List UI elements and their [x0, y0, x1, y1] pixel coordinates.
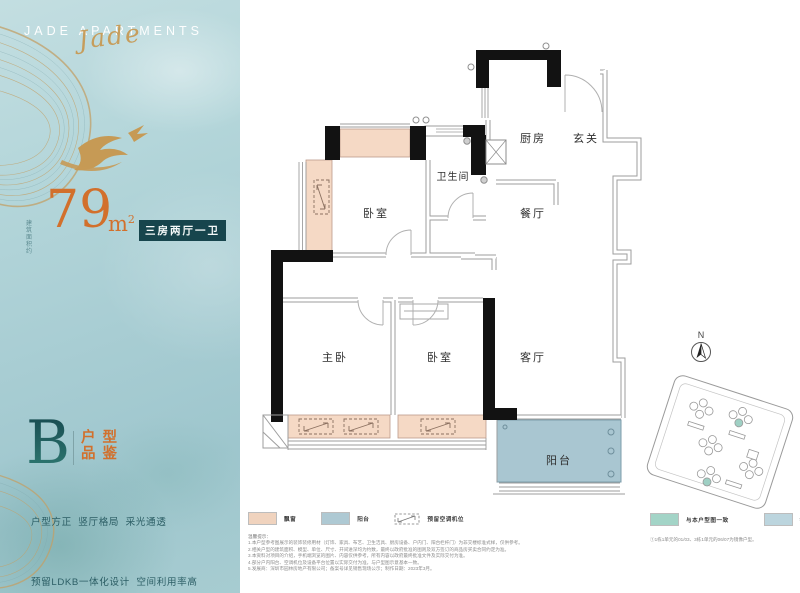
siteplan-icon [645, 373, 795, 510]
legend-same-label: 与本户型图一致 [686, 516, 729, 524]
room-label-foyer: 玄关 [573, 131, 599, 145]
mirror-note: ①1栋1单元的01/03、3栋1单元的06/07为镜像户型。 [650, 537, 757, 543]
room-label-dining: 餐厅 [520, 206, 546, 220]
room-label-bathroom: 卫生间 [437, 170, 470, 183]
room-label-balcony: 阳台 [546, 453, 572, 467]
feature-item: 户型方正 竖厅格局 采光通透 [31, 513, 201, 533]
compass-label: N [698, 330, 705, 340]
feature-list: 户型方正 竖厅格局 采光通透 预留LDKB一体化设计 空间利用率高 全明空间 三… [31, 473, 201, 593]
balcony-swatch [321, 512, 350, 525]
disclaimer: 温馨提示： 1.本户型参考图展示的装饰装修用材（灯饰、家具、布艺、卫生洁具、厨房… [248, 534, 578, 572]
swallow-icon [60, 125, 148, 171]
room-label-master: 主卧 [322, 351, 348, 364]
brand-panel: JADE APARTMENTS Jade 建筑 面积约 79 m2 三房两厅一卫… [0, 0, 240, 593]
area-value: 79 [46, 184, 112, 236]
legend-left: 飘窗 阳台 预留空调机位 [248, 512, 482, 525]
bay-window-swatch [248, 512, 277, 525]
kitchen-shaft [486, 140, 506, 164]
ac-legend-icon [394, 513, 420, 525]
disclaimer-line: 5.发展商：深圳市园林房地产有限公司；备案号详见销售现场公示；制作日期：2023… [248, 566, 578, 572]
same-unit-swatch [650, 513, 679, 526]
room-label-bedroom2: 卧室 [427, 350, 453, 364]
closet [400, 304, 448, 319]
walls-gray [283, 70, 639, 418]
door-arcs [358, 75, 602, 325]
room-label-living: 客厅 [520, 350, 546, 364]
mirror-unit-swatch [764, 513, 793, 526]
legend-ac-label: 预留空调机位 [427, 515, 464, 523]
area-sublabel: 建筑 面积约 [26, 221, 33, 256]
divider [73, 431, 74, 465]
area-unit: m2 [108, 212, 135, 236]
legend-bay-label: 飘窗 [284, 515, 296, 523]
floorplan: 卧室 卫生间 厨房 玄关 餐厅 主卧 卧室 客厅 阳台 [243, 30, 663, 510]
poster: JADE APARTMENTS Jade 建筑 面积约 79 m2 三房两厅一卫… [0, 0, 800, 593]
room-label-bedroom-top: 卧室 [363, 206, 389, 220]
compass-icon: N [692, 330, 711, 362]
room-label-kitchen: 厨房 [520, 132, 546, 145]
legend-balcony-label: 阳台 [357, 515, 369, 523]
unit-letter: B [26, 414, 70, 472]
siteplan-group: N [640, 322, 800, 512]
unit-title: 户型 品鉴 [81, 430, 124, 462]
feature-item: 预留LDKB一体化设计 空间利用率高 [31, 573, 201, 593]
balcony-area [497, 420, 621, 482]
layout-badge: 三房两厅一卫 [139, 220, 226, 241]
legend-right: 与本户型图一致 镜像户型 [650, 513, 800, 526]
